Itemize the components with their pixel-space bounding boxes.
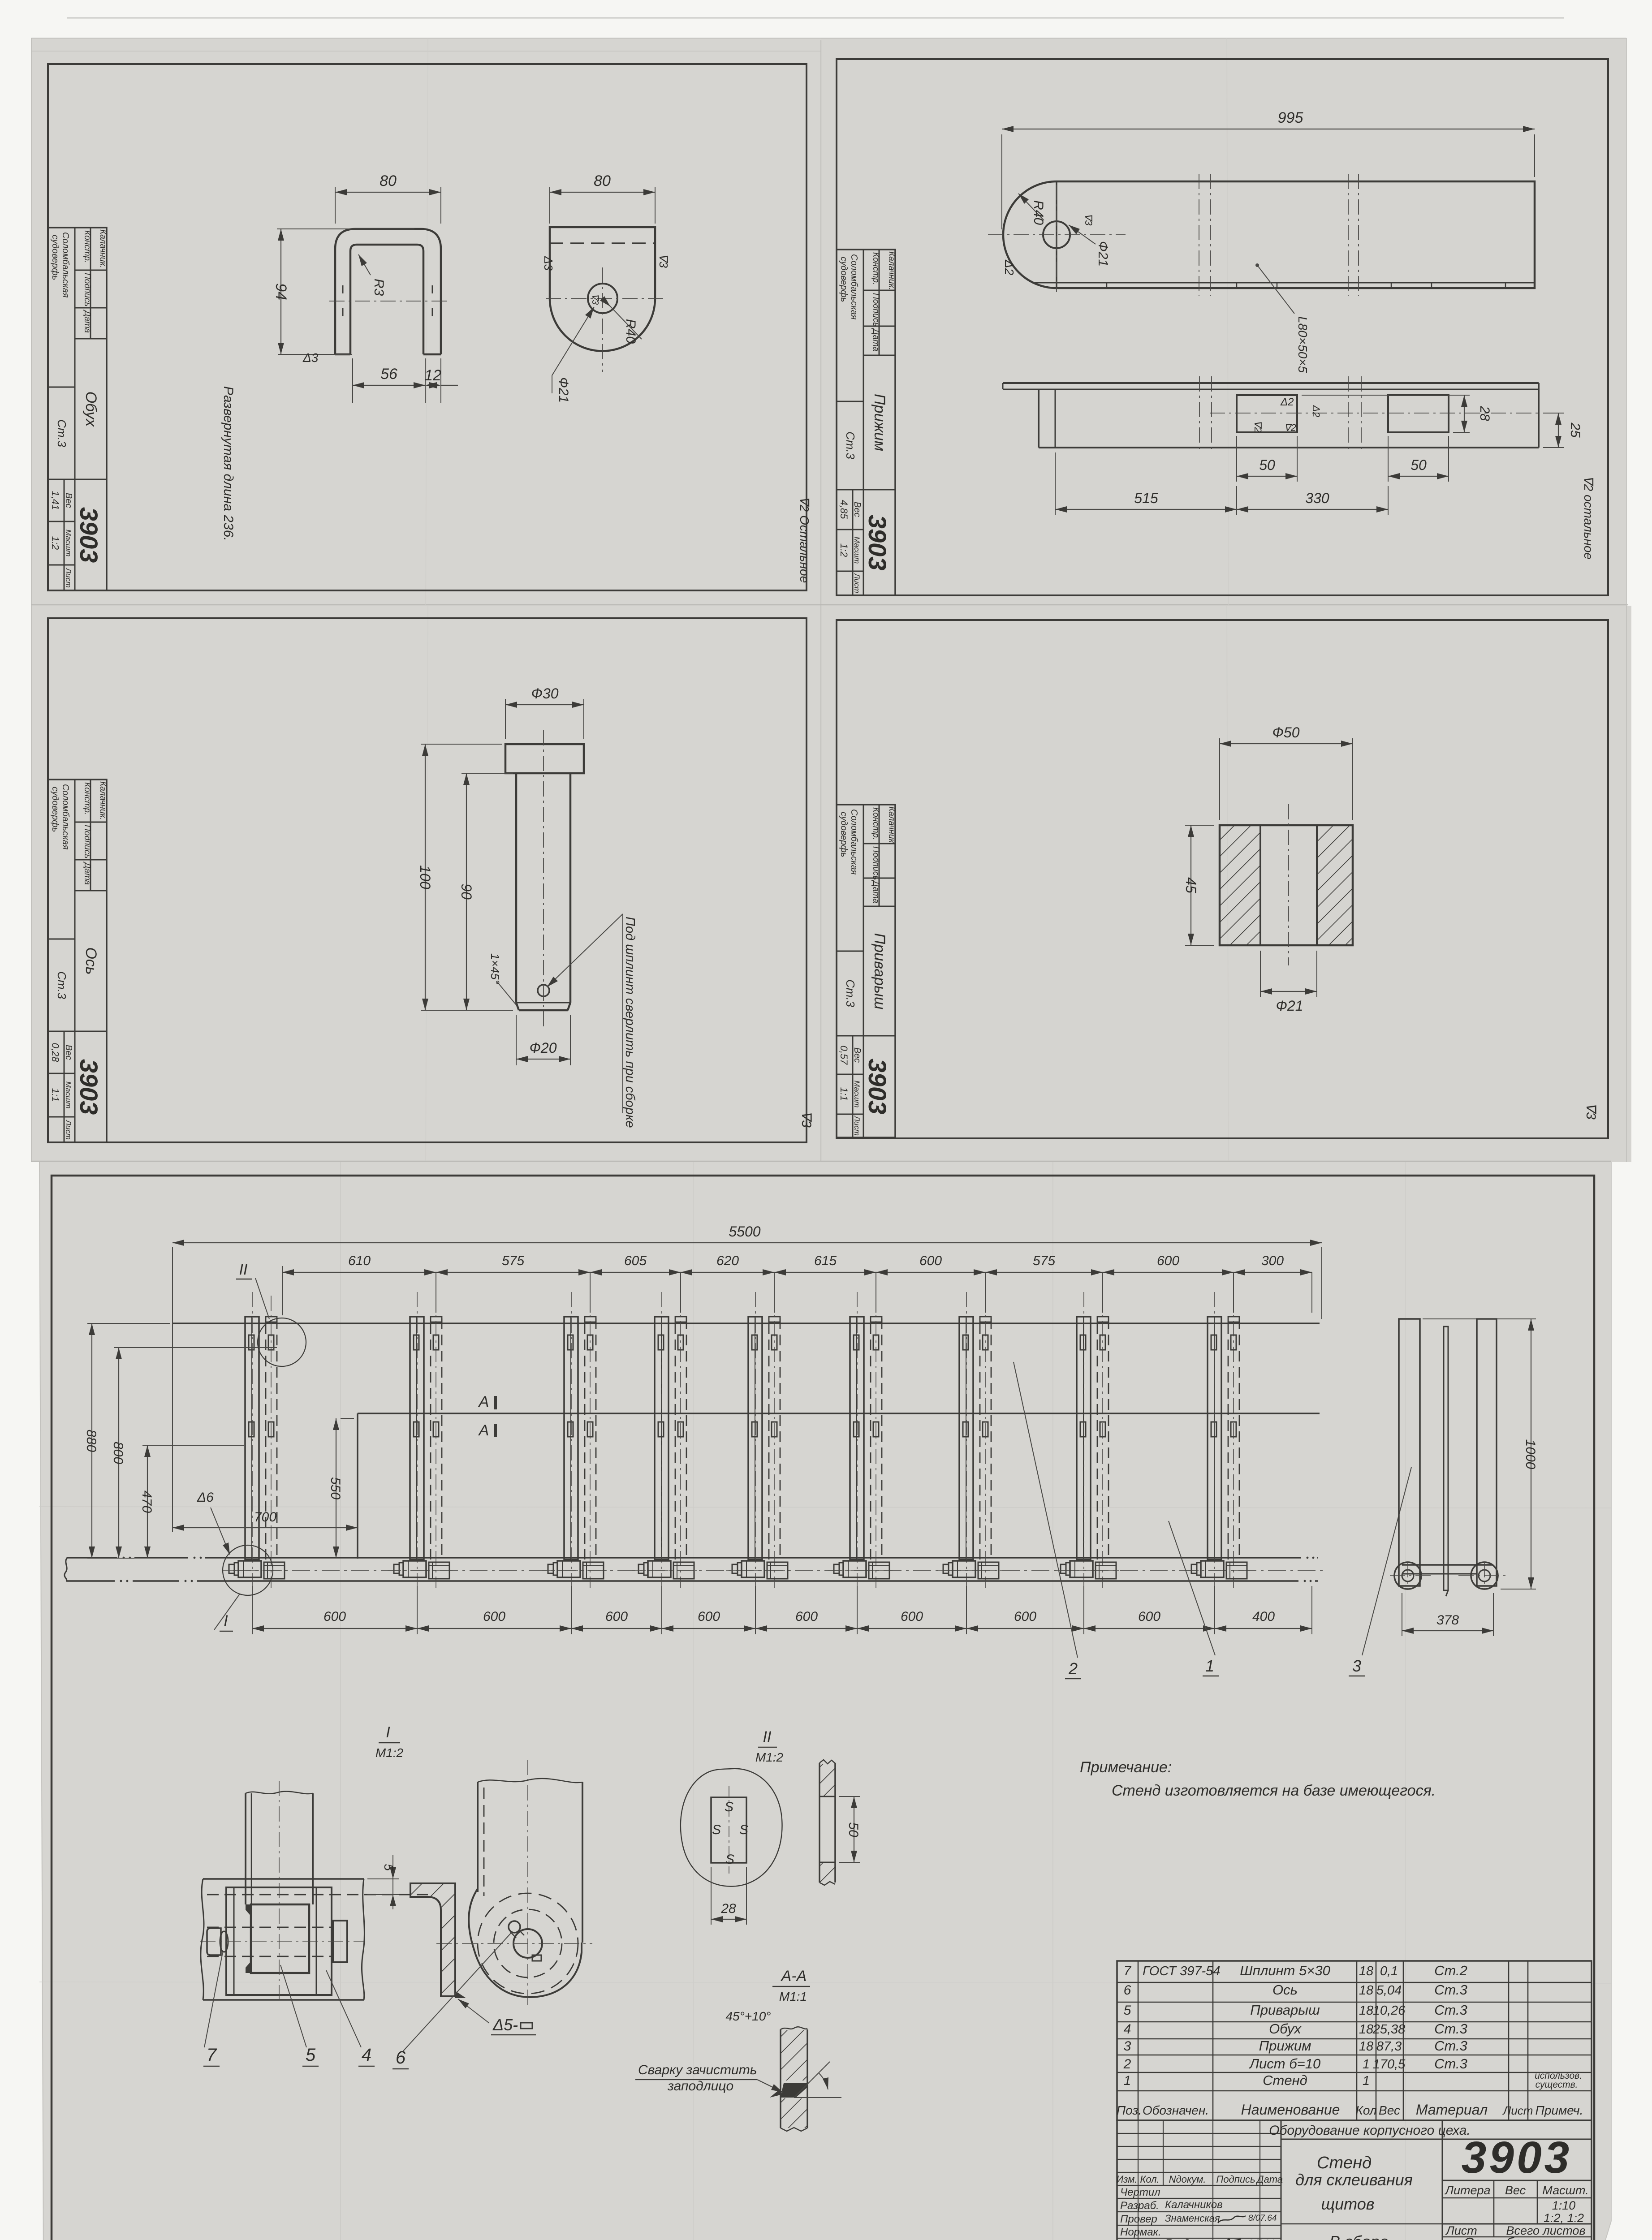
svg-text:600: 600 (1138, 1609, 1160, 1624)
svg-text:Ст.3: Ст.3 (844, 979, 857, 1007)
svg-text:56: 56 (380, 366, 397, 383)
svg-text:3903: 3903 (1462, 2132, 1572, 2183)
svg-text:50: 50 (1259, 457, 1275, 473)
svg-text:18: 18 (1359, 1983, 1373, 1998)
svg-text:575: 575 (1033, 1254, 1055, 1268)
svg-text:Бредис: Бредис (1165, 2237, 1201, 2240)
svg-text:Подпись: Подпись (871, 846, 880, 880)
svg-text:S: S (725, 1800, 733, 1814)
svg-text:12: 12 (424, 367, 441, 384)
svg-text:605: 605 (624, 1254, 647, 1268)
svg-text:Соломбальская: Соломбальская (60, 784, 70, 850)
svg-text:4: 4 (1124, 2022, 1131, 2037)
svg-text:Лист: Лист (1502, 2104, 1533, 2117)
svg-text:щитов: щитов (1321, 2195, 1374, 2213)
svg-text:Соломбальская: Соломбальская (849, 254, 859, 320)
svg-text:330: 330 (1305, 490, 1329, 506)
svg-text:М1:2: М1:2 (755, 1750, 784, 1764)
svg-text:Сварку зачистить: Сварку зачистить (638, 2063, 757, 2077)
svg-text:600: 600 (1014, 1609, 1036, 1624)
svg-text:Масшт: Масшт (853, 537, 861, 564)
svg-text:Масшт: Масшт (64, 1081, 73, 1109)
svg-text:995: 995 (1278, 109, 1303, 126)
svg-text:Ф21: Ф21 (1276, 998, 1303, 1014)
svg-text:судоверфь: судоверфь (839, 257, 849, 302)
svg-text:300: 300 (1261, 1254, 1284, 1268)
svg-text:Δ3: Δ3 (542, 256, 555, 271)
svg-text:Обух: Обух (82, 392, 99, 427)
svg-text:∇2 остальное: ∇2 остальное (1582, 476, 1596, 560)
svg-text:25,38: 25,38 (1372, 2022, 1406, 2037)
svg-text:550: 550 (328, 1477, 343, 1499)
svg-text:3903: 3903 (863, 515, 892, 571)
svg-text:470: 470 (139, 1490, 154, 1513)
svg-text:Лист: Лист (853, 1116, 861, 1136)
svg-text:Обух: Обух (1269, 2021, 1302, 2037)
svg-text:28: 28 (1477, 405, 1492, 421)
svg-text:1000: 1000 (1523, 1439, 1538, 1469)
svg-text:Материал: Материал (1416, 2102, 1488, 2118)
svg-text:∇3: ∇3 (1583, 1103, 1598, 1120)
svg-text:Подпись: Подпись (82, 273, 92, 306)
svg-text:400: 400 (1252, 1609, 1275, 1624)
svg-text:25: 25 (1568, 422, 1583, 438)
svg-text:Лист: Лист (64, 1120, 73, 1140)
svg-text:18: 18 (1359, 2022, 1373, 2037)
svg-text:45°+10°: 45°+10° (725, 2009, 771, 2023)
svg-text:Соломбальская: Соломбальская (849, 809, 859, 875)
svg-text:∇3: ∇3 (590, 294, 600, 305)
svg-text:620: 620 (716, 1254, 739, 1268)
svg-text:Констр.: Констр. (82, 782, 92, 815)
svg-text:Развернутая длина 236.: Развернутая длина 236. (221, 386, 236, 541)
svg-text:Наименование: Наименование (1241, 2102, 1340, 2118)
svg-text:Кол: Кол (1355, 2103, 1376, 2117)
svg-text:Ст.3: Ст.3 (844, 431, 857, 459)
svg-text:6: 6 (396, 2048, 406, 2068)
svg-text:Кол.: Кол. (1140, 2174, 1159, 2185)
svg-text:Калачник.: Калачник. (98, 229, 108, 268)
svg-text:I: I (224, 1612, 228, 1629)
svg-text:Δ2: Δ2 (1280, 396, 1294, 408)
svg-text:Лист б=10: Лист б=10 (1249, 2056, 1320, 2072)
svg-text:18: 18 (1359, 2039, 1373, 2054)
svg-text:80: 80 (380, 172, 397, 190)
svg-text:II: II (763, 1728, 772, 1745)
svg-text:600: 600 (323, 1609, 346, 1624)
svg-text:Подпись: Подпись (1216, 2174, 1255, 2185)
svg-text:Подпись: Подпись (871, 293, 880, 327)
svg-text:∇2: ∇2 (1284, 422, 1296, 433)
svg-text:1: 1 (1124, 2073, 1131, 2088)
svg-text:∇2: ∇2 (1252, 421, 1264, 433)
svg-text:515: 515 (1134, 490, 1158, 506)
svg-text:Соломбальская: Соломбальская (1464, 2235, 1566, 2240)
svg-text:Литера: Литера (1444, 2184, 1490, 2197)
svg-text:Δ6: Δ6 (197, 1490, 214, 1505)
svg-text:Вес: Вес (64, 1045, 73, 1060)
svg-text:50: 50 (1410, 457, 1427, 473)
svg-text:Δ2: Δ2 (1002, 259, 1016, 276)
svg-text:Дата: Дата (82, 310, 92, 333)
svg-text:Оборудование корпусного цеха: Оборудование корпусного цеха. (1269, 2123, 1471, 2138)
svg-text:8/07.64: 8/07.64 (1248, 2214, 1277, 2223)
svg-text:Знаменская: Знаменская (1165, 2213, 1220, 2224)
svg-text:Дата: Дата (1255, 2174, 1283, 2185)
svg-text:Ф21: Ф21 (1096, 241, 1110, 267)
svg-text:Δ5-: Δ5- (492, 2016, 518, 2034)
svg-text:Соломбальская: Соломбальская (60, 232, 70, 298)
svg-text:600: 600 (1157, 1254, 1179, 1268)
svg-text:4: 4 (362, 2045, 371, 2065)
svg-text:28: 28 (720, 1901, 736, 1916)
svg-text:Дата: Дата (82, 862, 92, 885)
svg-text:575: 575 (502, 1254, 524, 1268)
svg-text:S: S (725, 1852, 734, 1867)
svg-text:Ф50: Ф50 (1272, 724, 1299, 741)
svg-text:0,1: 0,1 (1380, 1964, 1398, 1978)
svg-text:Δ2: Δ2 (1311, 405, 1322, 418)
svg-text:ГОСТ 397-54: ГОСТ 397-54 (1143, 1964, 1220, 1978)
svg-text:1:10: 1:10 (1552, 2199, 1576, 2212)
svg-text:∇3: ∇3 (799, 1111, 814, 1128)
svg-text:Подпись: Подпись (82, 825, 92, 858)
svg-text:Ст.3: Ст.3 (1434, 2056, 1467, 2072)
svg-text:0,57: 0,57 (838, 1046, 850, 1065)
svg-text:Ф20: Ф20 (529, 1040, 556, 1056)
svg-text:S: S (712, 1822, 721, 1837)
svg-text:600: 600 (901, 1609, 923, 1624)
svg-text:Прижим: Прижим (1259, 2038, 1311, 2054)
svg-text:Шплинт 5×30: Шплинт 5×30 (1240, 1963, 1330, 1978)
svg-text:∇2 Остальное: ∇2 Остальное (798, 496, 811, 583)
svg-text:1×45°: 1×45° (488, 953, 502, 984)
svg-text:М1:2: М1:2 (375, 1746, 404, 1760)
svg-text:Ст.3: Ст.3 (1434, 1982, 1467, 1998)
svg-text:∇3: ∇3 (1083, 214, 1094, 226)
svg-text:Калачник.: Калачник. (98, 781, 108, 820)
svg-text:1:2: 1:2 (838, 543, 850, 557)
svg-text:600: 600 (795, 1609, 818, 1624)
svg-text:R40: R40 (623, 319, 638, 344)
svg-text:Стенд: Стенд (1317, 2154, 1372, 2172)
svg-text:Вес: Вес (1505, 2184, 1526, 2197)
svg-text:7: 7 (1124, 1964, 1132, 1978)
svg-text:Масшт: Масшт (853, 1081, 861, 1108)
svg-text:0,28: 0,28 (50, 1043, 61, 1063)
svg-text:А: А (478, 1422, 489, 1439)
svg-text:Ст.3: Ст.3 (1434, 2021, 1467, 2037)
svg-text:5,04: 5,04 (1376, 1983, 1402, 1998)
svg-text:Выпуст.: Выпуст. (1120, 2238, 1164, 2240)
svg-text:Ф30: Ф30 (531, 685, 558, 702)
svg-text:18: 18 (1359, 1964, 1373, 1978)
svg-text:Провер: Провер (1120, 2213, 1157, 2225)
svg-text:1,41: 1,41 (50, 491, 61, 510)
svg-text:Ст.3: Ст.3 (1434, 2002, 1467, 2018)
svg-text:5500: 5500 (729, 1223, 760, 1240)
svg-text:1: 1 (1205, 1657, 1214, 1675)
svg-text:600: 600 (698, 1609, 720, 1624)
svg-text:3903: 3903 (75, 1059, 103, 1115)
svg-text:Примечание:: Примечание: (1080, 1759, 1172, 1776)
svg-text:существ.: существ. (1536, 2080, 1578, 2090)
svg-text:3903: 3903 (75, 507, 103, 563)
svg-text:Вес: Вес (852, 502, 862, 517)
svg-text:4,85: 4,85 (838, 500, 850, 520)
svg-text:Обозначен.: Обозначен. (1143, 2103, 1209, 2117)
svg-text:R40: R40 (1031, 200, 1046, 225)
svg-text:Ст.3: Ст.3 (1434, 2038, 1467, 2054)
svg-text:А-А: А-А (781, 1968, 807, 1985)
svg-text:8.7.64: 8.7.64 (1248, 2238, 1274, 2240)
svg-text:94: 94 (272, 283, 289, 300)
svg-text:2: 2 (1068, 1659, 1078, 1678)
svg-text:5: 5 (1124, 2003, 1131, 2018)
svg-text:Дата: Дата (871, 328, 880, 351)
svg-text:Ф21: Ф21 (556, 377, 571, 403)
svg-text:Примеч.: Примеч. (1536, 2103, 1583, 2117)
svg-text:Калачников: Калачников (1165, 2199, 1223, 2211)
svg-text:700: 700 (254, 1510, 276, 1525)
svg-text:610: 610 (348, 1254, 371, 1268)
svg-text:Nдокум.: Nдокум. (1169, 2174, 1206, 2185)
svg-text:1: 1 (1363, 2057, 1370, 2072)
svg-text:заподлицо: заподлицо (667, 2079, 733, 2094)
svg-text:М1:1: М1:1 (779, 1990, 807, 2003)
svg-text:378: 378 (1436, 1613, 1459, 1628)
svg-text:170,5: 170,5 (1373, 2057, 1406, 2072)
svg-text:I: I (386, 1724, 390, 1741)
svg-text:1:2, 1:2: 1:2, 1:2 (1544, 2211, 1584, 2225)
svg-text:1:1: 1:1 (50, 1088, 61, 1102)
svg-text:судоверфь: судоверфь (50, 235, 60, 280)
svg-text:R3: R3 (371, 279, 386, 296)
svg-text:1: 1 (1363, 2074, 1370, 2088)
svg-text:100: 100 (417, 865, 433, 889)
svg-text:Масшт: Масшт (64, 530, 73, 557)
svg-text:Ось: Ось (1272, 1982, 1298, 1998)
svg-text:80: 80 (594, 172, 611, 190)
svg-text:Стенд: Стенд (1263, 2072, 1307, 2088)
svg-text:3903: 3903 (863, 1059, 892, 1115)
svg-text:Ст.3: Ст.3 (55, 971, 69, 999)
svg-text:Приварыш: Приварыш (1250, 2002, 1320, 2018)
svg-text:7: 7 (207, 2045, 217, 2065)
svg-text:Ст.3: Ст.3 (55, 419, 69, 447)
svg-text:Констр.: Констр. (871, 807, 880, 840)
svg-text:А: А (478, 1393, 489, 1410)
svg-text:880: 880 (84, 1430, 99, 1452)
svg-text:Вес: Вес (852, 1047, 862, 1063)
svg-text:5: 5 (382, 1864, 396, 1871)
svg-text:800: 800 (111, 1442, 125, 1464)
svg-text:3: 3 (1124, 2039, 1131, 2054)
svg-text:Констр.: Констр. (871, 252, 880, 285)
svg-text:10,26: 10,26 (1373, 2003, 1406, 2018)
svg-text:Изм.: Изм. (1117, 2174, 1138, 2185)
svg-text:II: II (239, 1261, 248, 1278)
svg-text:Ст.2: Ст.2 (1434, 1963, 1467, 1978)
svg-text:45: 45 (1183, 877, 1199, 893)
svg-text:600: 600 (483, 1609, 505, 1624)
svg-text:1:2: 1:2 (50, 536, 61, 550)
svg-text:Дата: Дата (871, 880, 880, 903)
svg-text:5: 5 (306, 2045, 316, 2065)
svg-text:Нормак.: Нормак. (1120, 2226, 1161, 2238)
svg-text:Приварыш: Приварыш (871, 933, 888, 1010)
svg-text:3: 3 (1352, 1657, 1361, 1675)
svg-text:600: 600 (605, 1609, 628, 1624)
svg-text:Вес: Вес (1379, 2103, 1400, 2117)
svg-text:50: 50 (846, 1822, 861, 1837)
svg-text:Под шплинт сверлить при сб: Под шплинт сверлить при сборке (623, 917, 637, 1128)
svg-text:18: 18 (1359, 2003, 1373, 2018)
svg-text:∇3: ∇3 (657, 254, 670, 268)
svg-text:для склеивания: для склеивания (1295, 2171, 1413, 2189)
svg-text:судоверфь: судоверфь (50, 787, 60, 832)
svg-text:Прижим: Прижим (871, 394, 888, 451)
svg-text:судоверфь: судоверфь (839, 812, 849, 857)
svg-text:Ось: Ось (82, 947, 99, 974)
svg-text:Лист: Лист (64, 568, 73, 588)
svg-text:Разраб.: Разраб. (1120, 2200, 1159, 2212)
svg-text:Чертил: Чертил (1120, 2186, 1160, 2198)
svg-text:Калачник.: Калачник. (887, 806, 896, 845)
svg-text:615: 615 (814, 1254, 837, 1268)
svg-text:В сборе.: В сборе. (1329, 2232, 1393, 2240)
svg-text:Поз.: Поз. (1117, 2103, 1142, 2117)
svg-text:Стенд изготовляется на ба: Стенд изготовляется на базе имеющегося. (1112, 1782, 1436, 1799)
svg-text:L80×50×5: L80×50×5 (1296, 316, 1310, 373)
svg-text:S: S (739, 1822, 748, 1837)
svg-text:Вес: Вес (64, 493, 73, 508)
svg-text:90: 90 (458, 883, 474, 900)
svg-text:Калачник.: Калачник. (887, 251, 896, 290)
svg-text:600: 600 (919, 1254, 942, 1268)
svg-text:Δ3: Δ3 (302, 351, 319, 365)
svg-text:Констр.: Констр. (82, 230, 92, 263)
svg-text:Масшт.: Масшт. (1542, 2184, 1588, 2197)
svg-text:Лист: Лист (853, 573, 861, 593)
svg-text:1:1: 1:1 (838, 1087, 850, 1101)
svg-text:6: 6 (1124, 1983, 1131, 1998)
svg-text:87,3: 87,3 (1376, 2039, 1402, 2054)
svg-text:2: 2 (1123, 2057, 1131, 2072)
